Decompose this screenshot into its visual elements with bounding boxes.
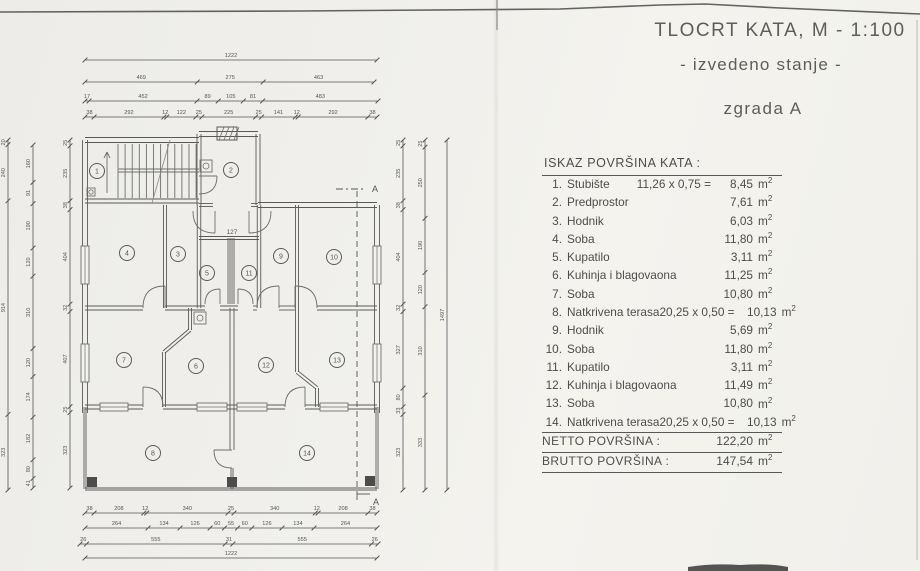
- svg-text:190: 190: [26, 221, 32, 230]
- svg-text:208: 208: [338, 506, 347, 512]
- svg-text:25: 25: [255, 110, 261, 116]
- drawing-subtitle: - izvedeno stanje -: [615, 55, 907, 75]
- area-cell: Kuhinja i blagovaona: [567, 378, 677, 392]
- area-row: 7.Soba10,80m2: [542, 286, 782, 304]
- svg-text:4: 4: [125, 251, 129, 258]
- area-cell: 10,13: [741, 415, 777, 429]
- svg-text:60: 60: [214, 521, 220, 527]
- area-cell: 3,11: [717, 250, 753, 264]
- svg-text:469: 469: [136, 75, 145, 81]
- svg-text:250: 250: [418, 178, 424, 187]
- brutto-unit: m2: [753, 453, 782, 468]
- svg-text:38: 38: [86, 506, 92, 512]
- svg-text:105: 105: [226, 94, 235, 100]
- svg-text:340: 340: [270, 506, 279, 512]
- area-cell: 6,03: [717, 214, 753, 228]
- svg-text:25: 25: [63, 406, 69, 412]
- area-cell: Hodnik: [567, 323, 604, 337]
- area-row: 6.Kuhinja i blagovaona11,25m2: [542, 267, 782, 285]
- area-cell: m2: [753, 286, 782, 301]
- svg-text:120: 120: [26, 358, 32, 367]
- area-cell: 11,80: [717, 232, 753, 246]
- svg-text:235: 235: [63, 169, 69, 178]
- svg-text:1: 1: [95, 169, 99, 176]
- area-cell: Predprostor: [567, 195, 629, 209]
- svg-text:208: 208: [114, 506, 123, 512]
- svg-text:235: 235: [396, 169, 402, 178]
- netto-label: NETTO POVRŠINA :: [542, 434, 660, 448]
- svg-text:160: 160: [26, 159, 32, 168]
- area-cell: m2: [753, 341, 782, 356]
- svg-text:340: 340: [183, 506, 192, 512]
- svg-text:3: 3: [176, 252, 180, 259]
- svg-text:13: 13: [333, 358, 341, 365]
- svg-text:141: 141: [274, 110, 283, 116]
- svg-text:240: 240: [1, 168, 7, 177]
- area-cell: 4.: [542, 232, 567, 246]
- area-cell: m2: [753, 194, 782, 209]
- svg-text:407: 407: [63, 354, 69, 363]
- area-cell: m2: [777, 304, 806, 319]
- svg-text:38: 38: [369, 506, 375, 512]
- area-totals: NETTO POVRŠINA : 122,20 m2 BRUTTO POVRŠI…: [542, 432, 782, 473]
- area-cell: m2: [753, 213, 782, 228]
- area-row: 13.Soba10,80m2: [542, 396, 782, 414]
- svg-text:126: 126: [262, 521, 271, 527]
- svg-text:38: 38: [396, 202, 402, 208]
- brutto-value: 147,54: [707, 454, 753, 468]
- svg-text:9: 9: [279, 254, 283, 261]
- svg-text:32: 32: [63, 305, 69, 311]
- area-rows: 1.Stubište11,26 x 0,75 =8,45m22.Predpros…: [542, 176, 782, 432]
- area-cell: 6.: [542, 268, 567, 282]
- svg-text:25: 25: [228, 506, 234, 512]
- svg-text:275: 275: [226, 75, 235, 81]
- area-cell: 8.: [542, 305, 567, 319]
- area-cell: 12.: [542, 378, 567, 392]
- svg-text:A: A: [372, 184, 378, 194]
- svg-text:323: 323: [63, 446, 69, 455]
- svg-text:12: 12: [162, 110, 168, 116]
- area-cell: 11,80: [717, 342, 753, 356]
- area-cell: 11,25: [717, 268, 753, 282]
- area-table-header: ISKAZ POVRŠINA KATA :: [542, 150, 782, 176]
- svg-text:134: 134: [293, 521, 302, 527]
- svg-text:14: 14: [303, 451, 311, 458]
- area-cell: 5.: [542, 250, 567, 264]
- area-cell: Stubište: [567, 177, 610, 191]
- svg-text:120: 120: [418, 285, 424, 294]
- area-row: 2.Predprostor7,61m2: [542, 194, 782, 212]
- area-row: 12.Kuhinja i blagovaona11,49m2: [542, 377, 782, 395]
- svg-text:264: 264: [341, 521, 350, 527]
- svg-text:33: 33: [396, 408, 402, 414]
- svg-text:1497: 1497: [440, 309, 446, 321]
- svg-text:60: 60: [242, 521, 248, 527]
- area-row: 1.Stubište11,26 x 0,75 =8,45m2: [542, 176, 782, 194]
- svg-text:323: 323: [396, 448, 402, 457]
- area-table: ISKAZ POVRŠINA KATA : 1.Stubište11,26 x …: [542, 150, 782, 473]
- area-cell: Hodnik: [567, 214, 604, 228]
- area-cell: 10,80: [717, 287, 753, 301]
- svg-text:126: 126: [190, 521, 199, 527]
- floor-plan-drawing: 1243511910761213814127AA1222469275463174…: [0, 0, 920, 571]
- area-row: 14.Natkrivena terasa20,25 x 0,50 =10,13m…: [542, 414, 782, 432]
- svg-text:134: 134: [159, 521, 168, 527]
- area-cell: m2: [753, 267, 782, 282]
- area-cell: Natkrivena terasa: [567, 415, 659, 429]
- svg-text:20: 20: [1, 139, 7, 145]
- area-cell: 11.: [542, 360, 567, 374]
- svg-text:38: 38: [369, 110, 375, 116]
- netto-unit: m2: [753, 433, 782, 448]
- svg-text:190: 190: [418, 241, 424, 250]
- area-cell: 7.: [542, 287, 567, 301]
- svg-text:310: 310: [26, 308, 32, 317]
- svg-text:323: 323: [1, 448, 7, 457]
- svg-text:264: 264: [112, 521, 121, 527]
- area-cell: Kuhinja i blagovaona: [567, 268, 677, 282]
- area-cell: 8,45: [717, 177, 753, 191]
- area-row: 9.Hodnik5,69m2: [542, 322, 782, 340]
- paper-fold-crease: [493, 0, 499, 571]
- area-row: 4.Soba11,80m2: [542, 231, 782, 249]
- svg-text:32: 32: [396, 305, 402, 311]
- svg-text:333: 333: [418, 438, 424, 447]
- area-cell: 5,69: [717, 323, 753, 337]
- svg-text:182: 182: [26, 434, 32, 443]
- svg-text:17: 17: [84, 94, 90, 100]
- area-cell: 10,80: [717, 396, 753, 410]
- svg-text:91: 91: [26, 190, 32, 196]
- area-cell: m2: [753, 249, 782, 264]
- area-row: 5.Kupatilo3,11m2: [542, 249, 782, 267]
- building-label: zgrada A: [617, 99, 909, 119]
- area-cell: m2: [753, 231, 782, 246]
- svg-text:292: 292: [124, 110, 133, 116]
- svg-text:2: 2: [229, 168, 233, 175]
- svg-text:555: 555: [298, 537, 307, 543]
- svg-text:38: 38: [86, 110, 92, 116]
- svg-text:7: 7: [122, 358, 126, 365]
- brutto-row: BRUTTO POVRŠINA : 147,54 m2: [542, 453, 782, 473]
- svg-text:25: 25: [418, 140, 424, 146]
- svg-text:5: 5: [205, 271, 209, 278]
- svg-text:127: 127: [227, 229, 238, 236]
- svg-text:12: 12: [314, 506, 320, 512]
- svg-text:25: 25: [396, 140, 402, 146]
- svg-text:80: 80: [396, 394, 402, 400]
- svg-text:11: 11: [245, 271, 252, 278]
- area-cell: Soba: [567, 396, 595, 410]
- svg-text:8: 8: [151, 451, 155, 458]
- netto-row: NETTO POVRŠINA : 122,20 m2: [542, 433, 782, 453]
- svg-text:404: 404: [63, 252, 69, 261]
- svg-text:6: 6: [194, 364, 198, 371]
- area-cell: m2: [753, 359, 782, 374]
- svg-text:1222: 1222: [225, 53, 237, 59]
- svg-text:26: 26: [80, 537, 86, 543]
- svg-text:26: 26: [372, 537, 378, 543]
- area-cell: Kupatilo: [567, 250, 610, 264]
- svg-text:12: 12: [294, 110, 300, 116]
- area-cell: 9.: [542, 323, 567, 337]
- area-row: 3.Hodnik6,03m2: [542, 213, 782, 231]
- area-cell: m2: [777, 414, 806, 429]
- area-cell: 3.: [542, 214, 567, 228]
- area-cell: 1.: [542, 177, 567, 191]
- area-cell: Soba: [567, 232, 595, 246]
- svg-text:327: 327: [396, 345, 402, 354]
- svg-text:1222: 1222: [225, 551, 237, 557]
- area-cell: m2: [753, 322, 782, 337]
- scanned-floorplan-page: 1243511910761213814127AA1222469275463174…: [0, 0, 920, 571]
- area-row: 11.Kupatilo3,11m2: [542, 359, 782, 377]
- area-row: 10.Soba11,80m2: [542, 341, 782, 359]
- area-cell: m2: [753, 377, 782, 392]
- svg-text:225: 225: [224, 110, 233, 116]
- svg-text:452: 452: [138, 94, 147, 100]
- area-cell: 10,13: [741, 305, 777, 319]
- area-cell: Natkrivena terasa: [567, 305, 659, 319]
- area-cell: 7,61: [717, 195, 753, 209]
- area-cell: Soba: [567, 342, 595, 356]
- svg-text:174: 174: [26, 392, 32, 401]
- area-cell: 10.: [542, 342, 567, 356]
- area-cell: 13.: [542, 396, 567, 410]
- svg-text:10: 10: [330, 255, 338, 262]
- svg-text:25: 25: [196, 110, 202, 116]
- svg-text:12: 12: [142, 506, 148, 512]
- svg-text:483: 483: [316, 94, 325, 100]
- brutto-label: BRUTTO POVRŠINA :: [542, 454, 669, 468]
- area-cell: m2: [753, 396, 782, 411]
- area-cell: 11,26 x 0,75 =: [637, 177, 717, 191]
- area-cell: m2: [753, 176, 782, 191]
- area-cell: 2.: [542, 195, 567, 209]
- area-cell: 20,25 x 0,50 =: [659, 415, 740, 429]
- svg-text:292: 292: [328, 110, 337, 116]
- area-cell: 11,49: [717, 378, 753, 392]
- area-cell: Kupatilo: [567, 360, 610, 374]
- svg-text:38: 38: [63, 202, 69, 208]
- svg-text:89: 89: [205, 94, 211, 100]
- svg-text:555: 555: [151, 537, 160, 543]
- svg-text:310: 310: [418, 346, 424, 355]
- svg-text:463: 463: [314, 75, 323, 81]
- svg-text:81: 81: [250, 94, 256, 100]
- area-cell: 20,25 x 0,50 =: [659, 305, 740, 319]
- area-cell: 14.: [542, 415, 567, 429]
- drawing-title: TLOCRT KATA, M - 1:100: [625, 20, 920, 42]
- svg-text:122: 122: [177, 110, 186, 116]
- svg-text:12: 12: [262, 363, 270, 370]
- svg-text:120: 120: [26, 257, 32, 266]
- area-row: 8.Natkrivena terasa20,25 x 0,50 =10,13m2: [542, 304, 782, 322]
- svg-text:80: 80: [26, 466, 32, 472]
- area-cell: 3,11: [717, 360, 753, 374]
- svg-text:55: 55: [228, 521, 234, 527]
- svg-text:41: 41: [26, 480, 32, 486]
- area-cell: Soba: [567, 287, 595, 301]
- svg-text:914: 914: [1, 303, 7, 312]
- netto-value: 122,20: [707, 434, 753, 448]
- svg-text:404: 404: [396, 252, 402, 261]
- svg-text:25: 25: [63, 140, 69, 146]
- svg-text:31: 31: [226, 537, 232, 543]
